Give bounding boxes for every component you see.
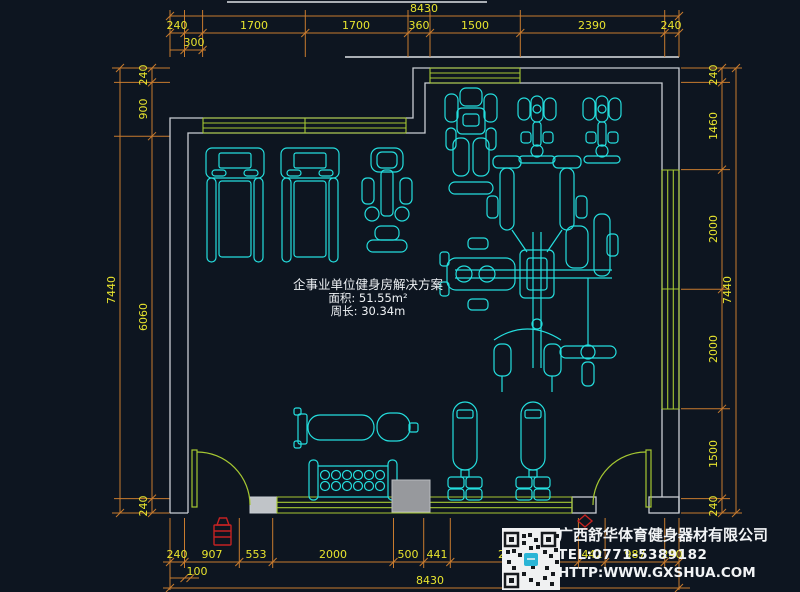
dim-label: 1700 bbox=[240, 19, 268, 32]
plan-title: 企事业单位健身房解决方案 bbox=[293, 277, 444, 292]
treadmill-icon bbox=[281, 148, 339, 262]
dim-label: 2000 bbox=[707, 215, 720, 243]
dumbbell-rack-icon bbox=[309, 460, 397, 500]
dim-label: 900 bbox=[137, 99, 150, 120]
dim-label: 240 bbox=[661, 19, 682, 32]
window-right bbox=[662, 170, 679, 409]
window-top-right bbox=[430, 68, 520, 83]
door-left bbox=[192, 450, 250, 507]
window-top-left bbox=[203, 118, 406, 133]
qr-code bbox=[502, 528, 560, 590]
door-right bbox=[593, 450, 651, 507]
wall-stub bbox=[250, 497, 277, 513]
dim-label: 240 bbox=[707, 496, 720, 517]
dim-label: 6060 bbox=[137, 303, 150, 331]
plan-annotation: 企事业单位健身房解决方案 面积: 51.55m² 周长: 30.34m bbox=[293, 277, 444, 318]
dim-label: 8430 bbox=[416, 574, 444, 587]
boxing-bag-icon bbox=[516, 402, 550, 500]
dim-label: 7440 bbox=[105, 276, 118, 304]
dim-label: 240 bbox=[167, 548, 188, 561]
dim-label: 1500 bbox=[707, 440, 720, 468]
dim-label: 8430 bbox=[410, 2, 438, 15]
plan-area: 面积: 51.55m² bbox=[328, 291, 407, 305]
dim-label: 240 bbox=[167, 19, 188, 32]
dim-label: 240 bbox=[137, 496, 150, 517]
company-tel: TEL:0771-5389182 bbox=[558, 547, 707, 563]
dim-label: 2390 bbox=[578, 19, 606, 32]
dim-label: 907 bbox=[202, 548, 223, 561]
dim-label: 1500 bbox=[461, 19, 489, 32]
dim-label: 240 bbox=[137, 65, 150, 86]
dim-label: 300 bbox=[184, 36, 205, 49]
dim-label: 2000 bbox=[707, 335, 720, 363]
dim-label: 2000 bbox=[319, 548, 347, 561]
floor-plan-svg: 8430 240 1700 1700 360 1500 2390 240 300… bbox=[0, 0, 800, 592]
treadmill-icon bbox=[206, 148, 264, 262]
company-website: HTTP:WWW.GXSHUA.COM bbox=[558, 565, 756, 581]
dim-label: 240 bbox=[707, 65, 720, 86]
plan-perimeter: 周长: 30.34m bbox=[331, 304, 406, 318]
dim-label: 1700 bbox=[342, 19, 370, 32]
weight-bench-icon bbox=[294, 408, 418, 448]
dim-label: 553 bbox=[246, 548, 267, 561]
dim-label: 441 bbox=[427, 548, 448, 561]
multi-station-gym-icon bbox=[440, 156, 618, 392]
cad-drawing-canvas[interactable]: 8430 240 1700 1700 360 1500 2390 240 300… bbox=[0, 0, 800, 592]
company-block: 广西舒华体育健身器材有限公司 TEL:0771-5389182 HTTP:WWW… bbox=[558, 526, 768, 581]
elliptical-machine-icon bbox=[445, 88, 497, 194]
exercise-bike-icon bbox=[362, 148, 412, 252]
structural-column bbox=[392, 480, 430, 512]
spin-bike-icon bbox=[518, 96, 556, 163]
dim-label: 360 bbox=[409, 19, 430, 32]
dim-label: 100 bbox=[187, 565, 208, 578]
spin-bike-icon bbox=[583, 96, 621, 163]
dim-label: 1460 bbox=[707, 112, 720, 140]
dim-label: 7440 bbox=[721, 276, 734, 304]
dim-label: 500 bbox=[398, 548, 419, 561]
wall-corner bbox=[649, 497, 679, 513]
company-name: 广西舒华体育健身器材有限公司 bbox=[558, 526, 768, 544]
boxing-bag-icon bbox=[448, 402, 482, 500]
fire-hydrant-icon bbox=[214, 518, 231, 545]
